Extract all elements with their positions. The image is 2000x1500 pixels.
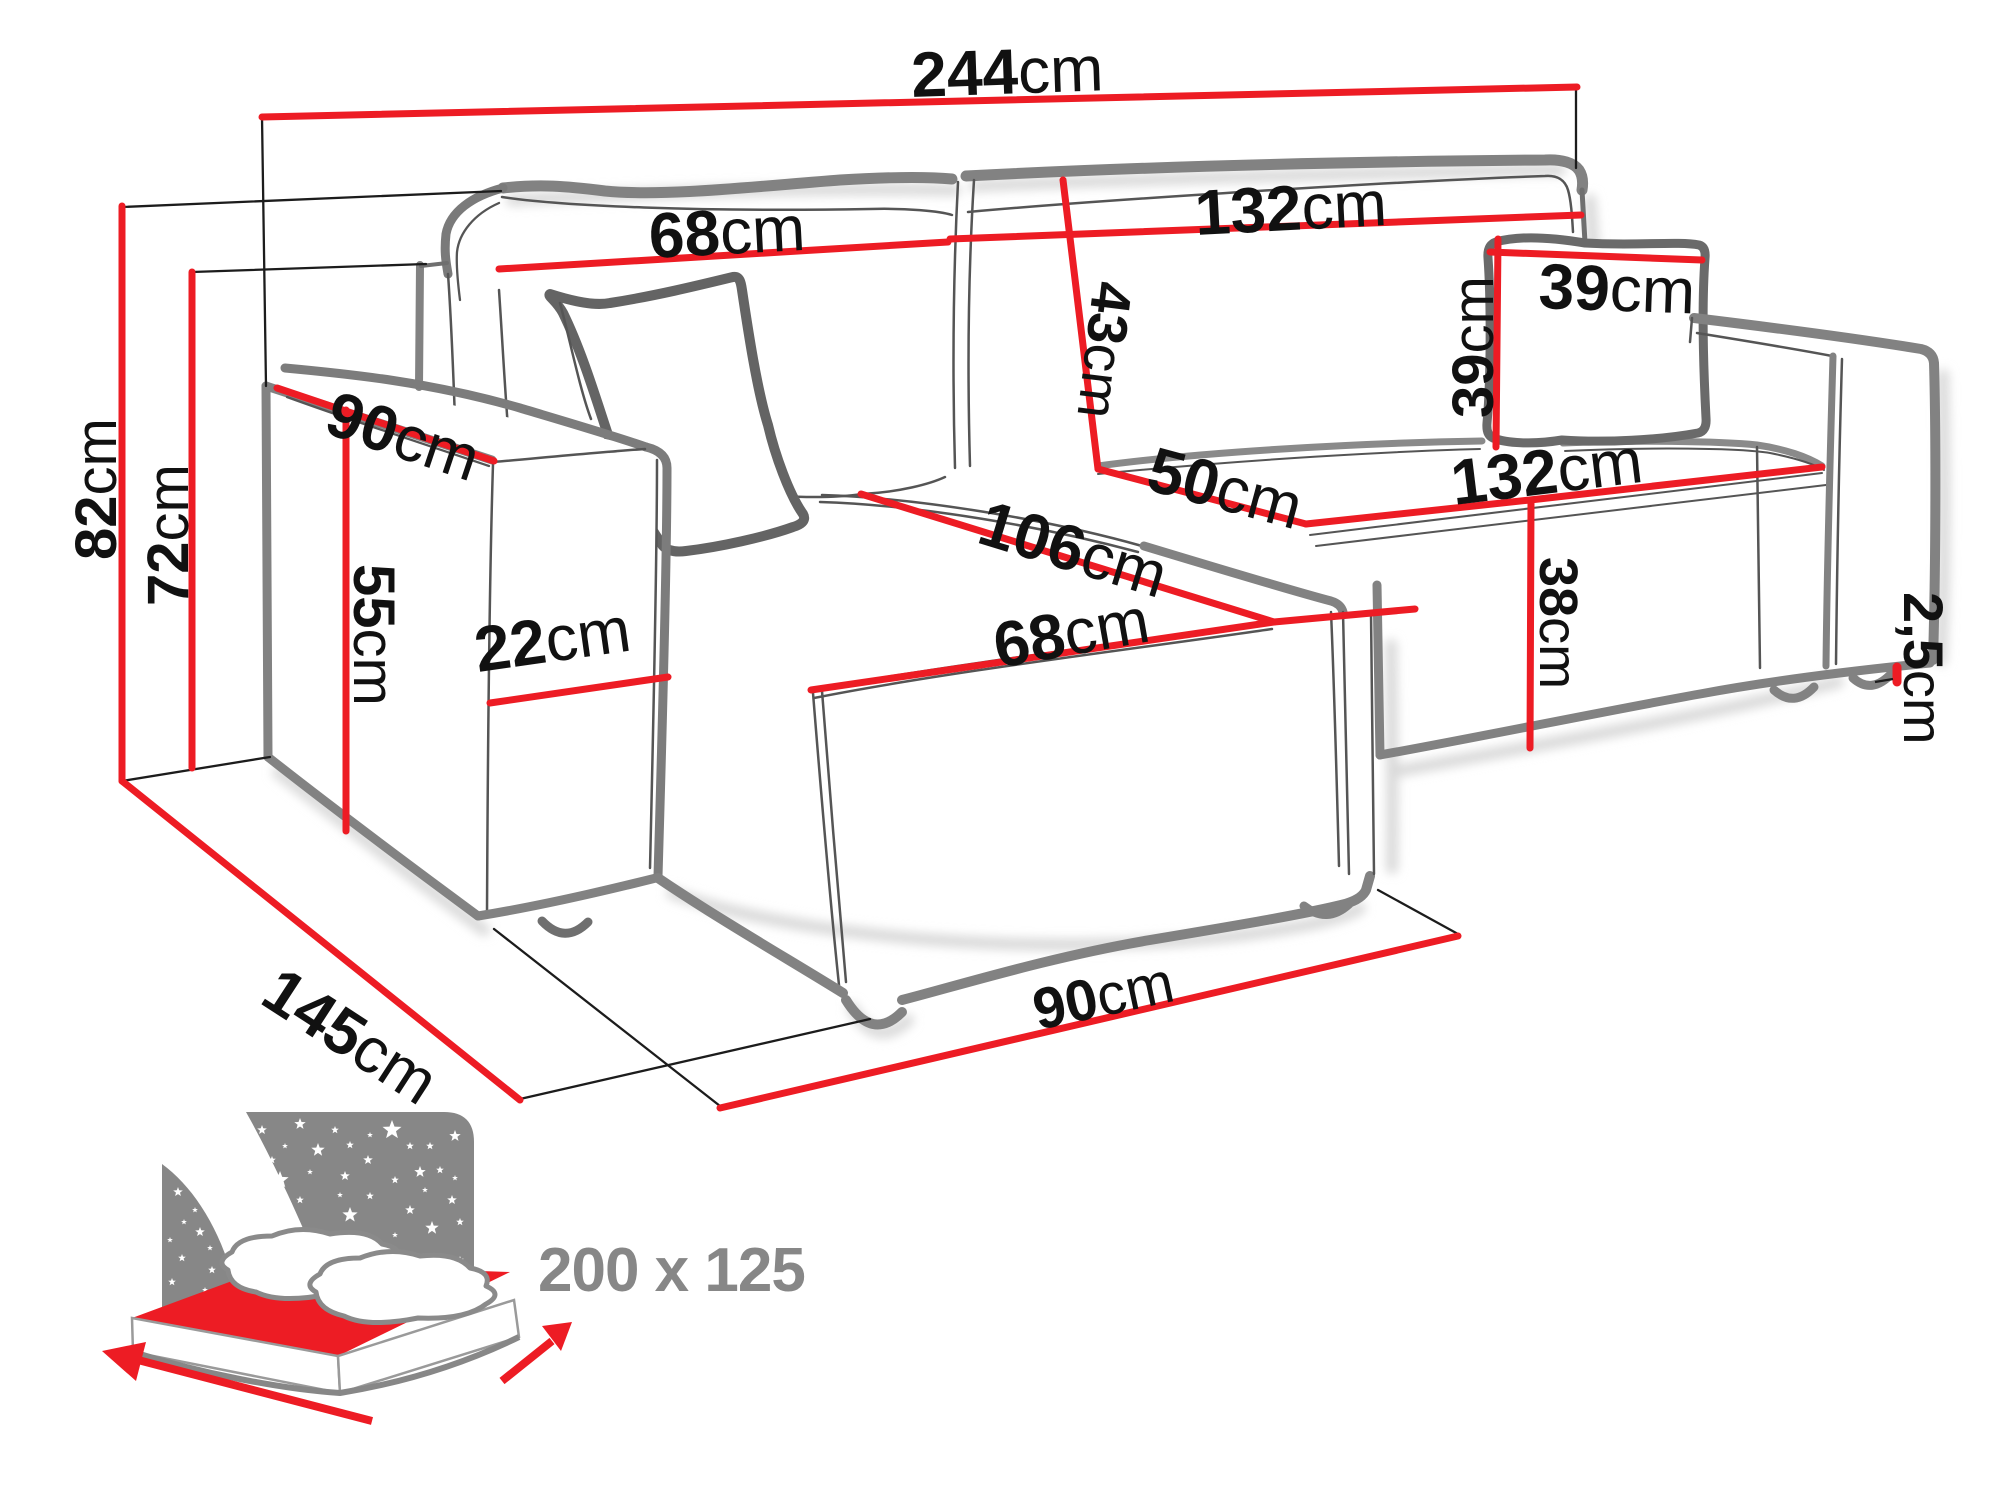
svg-text:38cm: 38cm [1528,557,1588,689]
svg-text:68cm: 68cm [647,192,807,272]
svg-text:55cm: 55cm [341,564,406,706]
svg-text:132cm: 132cm [1193,167,1389,249]
svg-text:39cm: 39cm [1441,276,1506,418]
svg-text:2,5cm: 2,5cm [1892,592,1955,745]
svg-text:82cm: 82cm [64,418,129,560]
svg-text:72cm: 72cm [136,464,201,606]
svg-text:244cm: 244cm [910,32,1104,111]
svg-text:200 x 125: 200 x 125 [538,1236,805,1305]
svg-text:39cm: 39cm [1538,250,1697,327]
